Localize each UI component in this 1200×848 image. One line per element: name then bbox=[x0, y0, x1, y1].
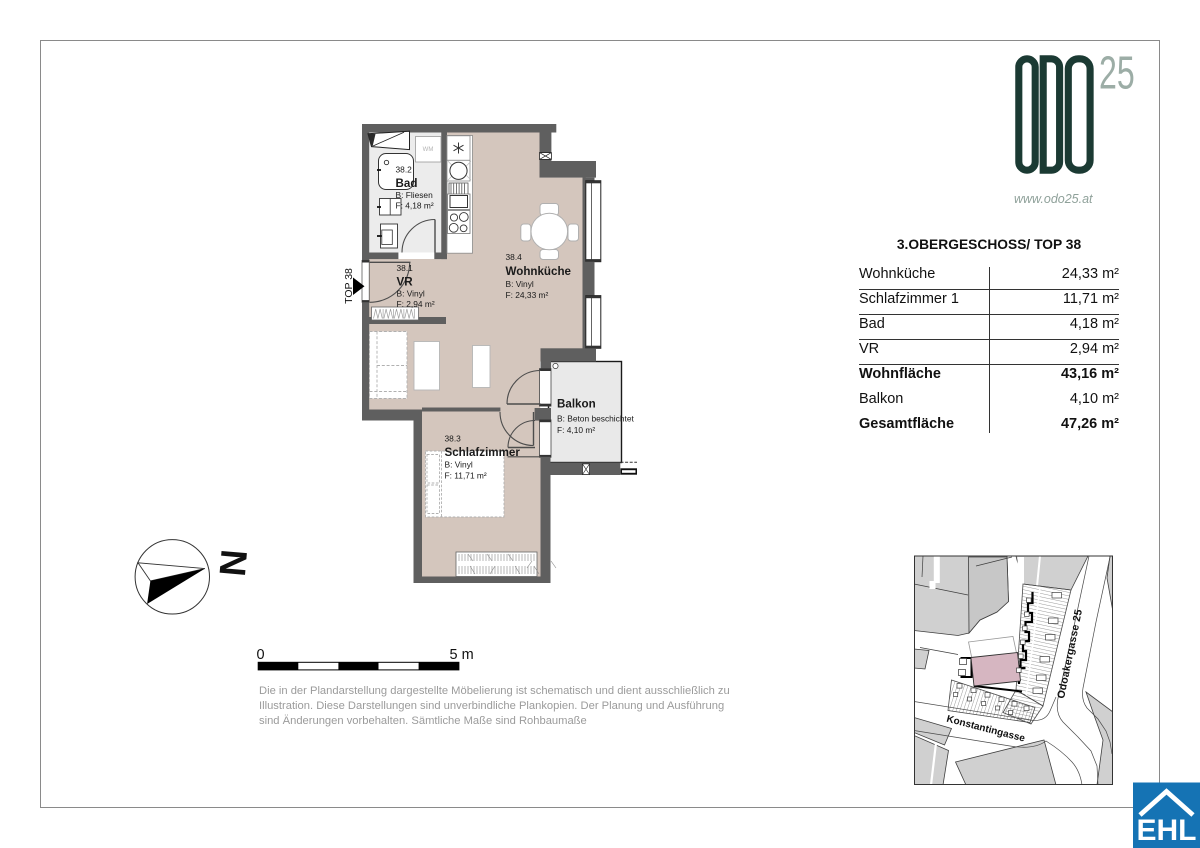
svg-text:TOP 38: TOP 38 bbox=[343, 268, 355, 304]
svg-text:25: 25 bbox=[1099, 48, 1135, 99]
svg-text:B: Vinyl: B: Vinyl bbox=[506, 279, 534, 289]
svg-text:B: Fliesen: B: Fliesen bbox=[396, 190, 434, 200]
svg-text:B: Vinyl: B: Vinyl bbox=[397, 288, 425, 298]
svg-text:38.1: 38.1 bbox=[397, 263, 414, 273]
svg-text:Bad: Bad bbox=[396, 177, 418, 190]
svg-text:F: 11,71 m²: F: 11,71 m² bbox=[445, 471, 487, 481]
svg-text:F: 4,18 m²: F: 4,18 m² bbox=[396, 200, 434, 210]
svg-text:WM: WM bbox=[423, 147, 434, 153]
svg-text:Wohnküche: Wohnküche bbox=[506, 265, 572, 278]
svg-text:EHL: EHL bbox=[1137, 814, 1197, 847]
svg-text:VR: VR bbox=[397, 275, 414, 288]
svg-text:38.3: 38.3 bbox=[445, 433, 462, 443]
svg-text:F: 24,33 m²: F: 24,33 m² bbox=[506, 290, 549, 300]
svg-text:38.4: 38.4 bbox=[506, 252, 523, 262]
svg-text:F: 2,94 m²: F: 2,94 m² bbox=[397, 299, 435, 309]
svg-text:5 m: 5 m bbox=[450, 647, 474, 663]
svg-text:F: 4,10 m²: F: 4,10 m² bbox=[557, 425, 595, 435]
svg-text:38.2: 38.2 bbox=[396, 165, 413, 175]
svg-text:Schlafzimmer: Schlafzimmer bbox=[445, 446, 521, 459]
svg-text:B: Beton beschichtet: B: Beton beschichtet bbox=[557, 413, 634, 423]
svg-text:N: N bbox=[211, 548, 254, 578]
svg-text:Balkon: Balkon bbox=[557, 397, 596, 410]
svg-text:B: Vinyl: B: Vinyl bbox=[445, 459, 473, 469]
svg-text:0: 0 bbox=[257, 647, 265, 663]
